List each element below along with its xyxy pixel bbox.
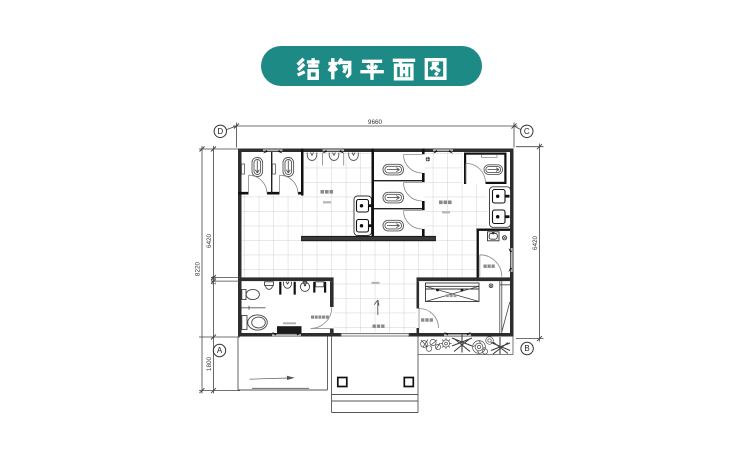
svg-text:6420: 6420 xyxy=(532,235,539,250)
svg-text:1800: 1800 xyxy=(206,356,213,371)
svg-text:6420: 6420 xyxy=(206,233,213,248)
svg-text:8220: 8220 xyxy=(195,261,202,276)
svg-text:C: C xyxy=(524,127,530,136)
svg-text:A: A xyxy=(217,346,223,355)
svg-text:100: 100 xyxy=(212,276,218,285)
svg-text:D: D xyxy=(217,127,223,136)
svg-text:B: B xyxy=(524,344,529,353)
svg-text:9660: 9660 xyxy=(368,119,383,126)
